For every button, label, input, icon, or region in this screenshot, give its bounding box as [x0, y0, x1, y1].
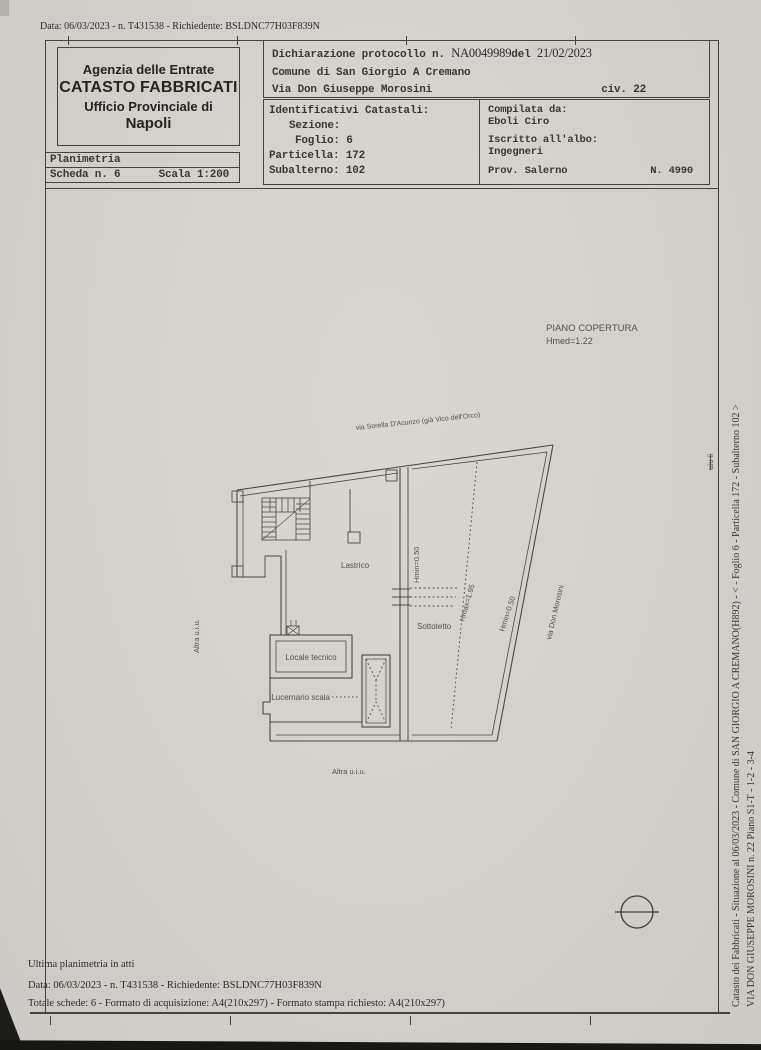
scheda-number: Scheda n. 6: [50, 169, 120, 181]
plan-title: PIANO COPERTURA: [546, 323, 638, 334]
frame-right: [718, 40, 719, 1013]
scan-date-line: Data: 06/03/2023 - n. T431538 - Richiede…: [40, 21, 320, 32]
altra-bottom-label: Altra u.i.u.: [332, 767, 366, 776]
province-value: Prov. Salerno: [488, 165, 567, 177]
footer-formato-line: Totale schede: 6 - Formato di acquisizio…: [28, 998, 445, 1009]
hmin-right-label: Hmin=0.50: [497, 595, 517, 632]
hmin-divider-label: Hmin=0.50: [412, 547, 421, 583]
locale-tecnico-label: Locale tecnico: [285, 653, 337, 662]
identifiers-box: Identificativi Catastali: Sezione: Fogli…: [263, 99, 480, 185]
foglio-field: Foglio: 6: [269, 134, 479, 149]
scan-artifact-bottom-edge: [0, 1037, 761, 1050]
compiled-by-label: Compilata da:: [488, 104, 701, 116]
staircase: [262, 498, 310, 540]
protocol-date: 21/02/2023: [537, 46, 592, 60]
agency-header-box: Agenzia delle Entrate CATASTO FABBRICATI…: [57, 47, 240, 146]
protocol-number: NA0049989: [451, 46, 511, 60]
albo-value: Ingegneri: [488, 146, 701, 158]
subalterno-field: Subalterno: 102: [269, 164, 479, 179]
frame-bottom: [30, 1012, 730, 1014]
catasto-title: CATASTO FABBRICATI: [58, 79, 239, 97]
office-label: Ufficio Provinciale di: [58, 99, 239, 114]
roof-dotted-lines: [332, 462, 477, 730]
orientation-symbol: [615, 896, 659, 928]
street-top-label: via Sorella D'Acunzo (già Vico dell'Orco…: [355, 412, 480, 432]
office-city: Napoli: [58, 115, 239, 132]
margin-catasto-line: Catasto dei Fabbricati - Situazione al 0…: [731, 339, 742, 1007]
lastrico-label: Lastrico: [341, 561, 370, 570]
albo-label: Iscritto all'albo:: [488, 134, 701, 146]
floor-plan-svg: PIANO COPERTURA Hmed=1.22 via Sorella D'…: [45, 188, 718, 955]
street-right-label: via Don Morosini: [544, 584, 565, 641]
altra-left-label: Altra u.i.u.: [192, 619, 201, 653]
compiler-name: Eboli Ciro: [488, 116, 701, 128]
planimetria-box: Planimetria Scheda n. 6 Scala 1:200: [45, 152, 240, 183]
agency-name: Agenzia delle Entrate: [58, 62, 239, 77]
margin-address-line: VIA DON GIUSEPPE MOROSINI n. 22 Piano S1…: [746, 339, 757, 1007]
sezione-field: Sezione:: [269, 119, 479, 134]
planimetria-title: Planimetria: [46, 153, 239, 168]
comune-line: Comune di San Giorgio A Cremano: [272, 65, 701, 83]
particella-field: Particella: 172: [269, 149, 479, 164]
scanned-cadastral-document: { "top_line": { "text": "Data: 06/03/202…: [0, 0, 761, 1050]
lucernario-label: Lucernario scala: [271, 693, 330, 702]
sottotetto-label: Sottotetto: [417, 622, 452, 631]
identifiers-title: Identificativi Catastali:: [269, 104, 479, 119]
declaration-box: Dichiarazione protocollo n. NA0049989del…: [263, 40, 710, 98]
civic-number: civ. 22: [601, 82, 646, 100]
footer-ultima-line: Ultima planimetria in atti: [28, 959, 134, 970]
footer-data-line: Data: 06/03/2023 - n. T431538 - Richiede…: [28, 980, 322, 991]
del-label: del: [511, 49, 530, 61]
plan-height-note: Hmed=1.22: [546, 336, 593, 346]
register-number: N. 4990: [650, 165, 693, 177]
protocol-label: Dichiarazione protocollo n.: [272, 49, 445, 61]
scale-value: Scala 1:200: [159, 169, 229, 181]
compiler-box: Compilata da: Eboli Ciro Iscritto all'al…: [479, 99, 710, 185]
hmax-label: Hmax=1.95: [457, 583, 476, 623]
scan-artifact-top-left: [0, 0, 9, 16]
struck-annotation: uiu 6: [706, 428, 715, 470]
street-line: Via Don Giuseppe Morosini: [272, 82, 432, 100]
